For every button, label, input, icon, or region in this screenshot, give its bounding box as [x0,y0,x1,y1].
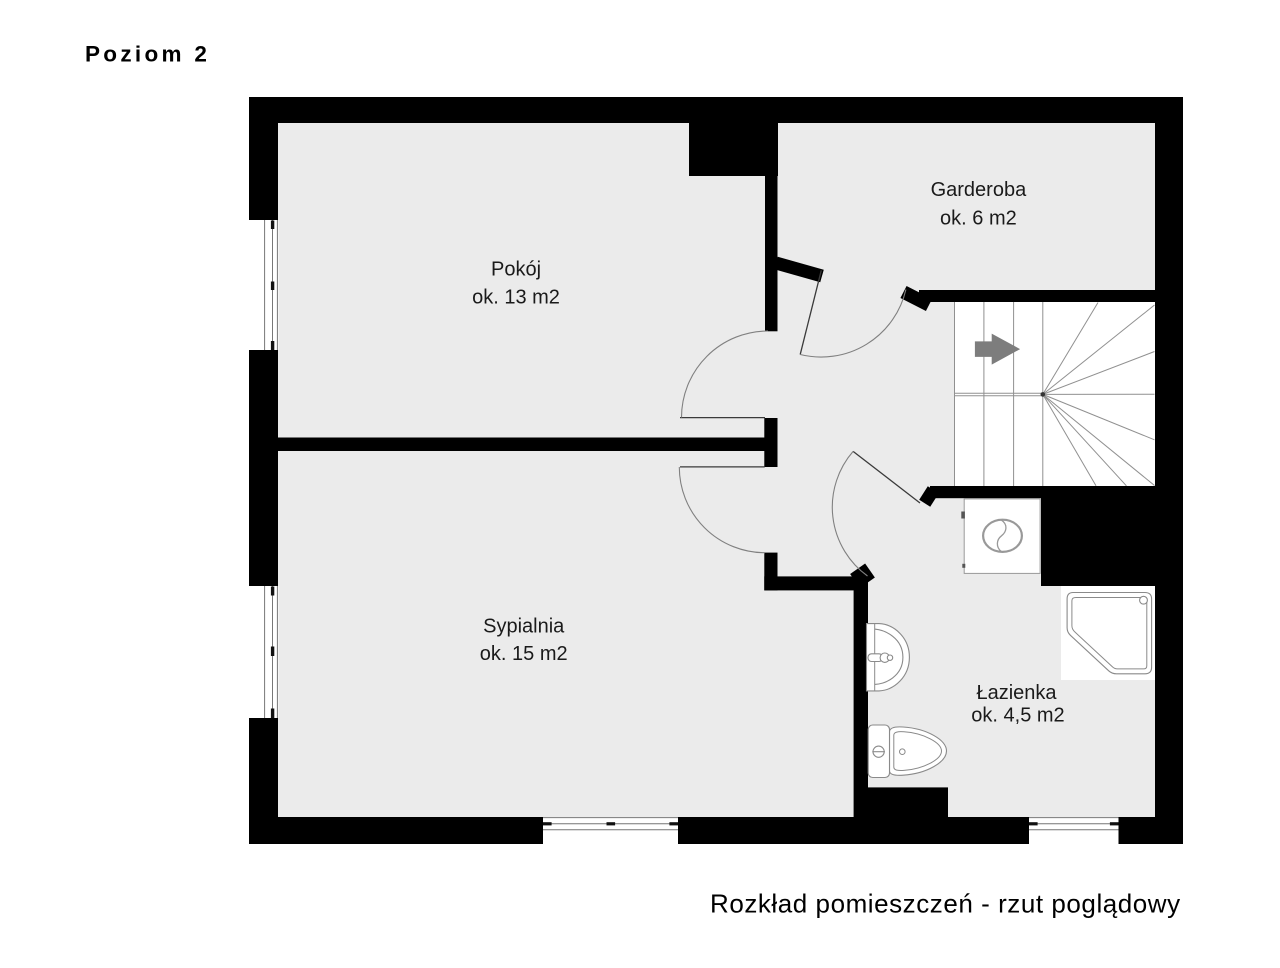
svg-text:Łazienka: Łazienka [976,682,1057,704]
svg-text:ok. 4,5 m2: ok. 4,5 m2 [971,705,1064,727]
svg-text:ok. 6 m2: ok. 6 m2 [940,207,1017,229]
svg-text:Poziom 2: Poziom 2 [85,41,210,66]
svg-text:Sypialnia: Sypialnia [483,615,565,637]
svg-text:ok. 13 m2: ok. 13 m2 [472,287,560,309]
svg-text:Pokój: Pokój [491,258,541,280]
svg-text:ok. 15 m2: ok. 15 m2 [480,643,568,665]
svg-text:Rozkład pomieszczeń - rzut pog: Rozkład pomieszczeń - rzut poglądowy [710,889,1181,919]
svg-text:Garderoba: Garderoba [931,179,1027,201]
